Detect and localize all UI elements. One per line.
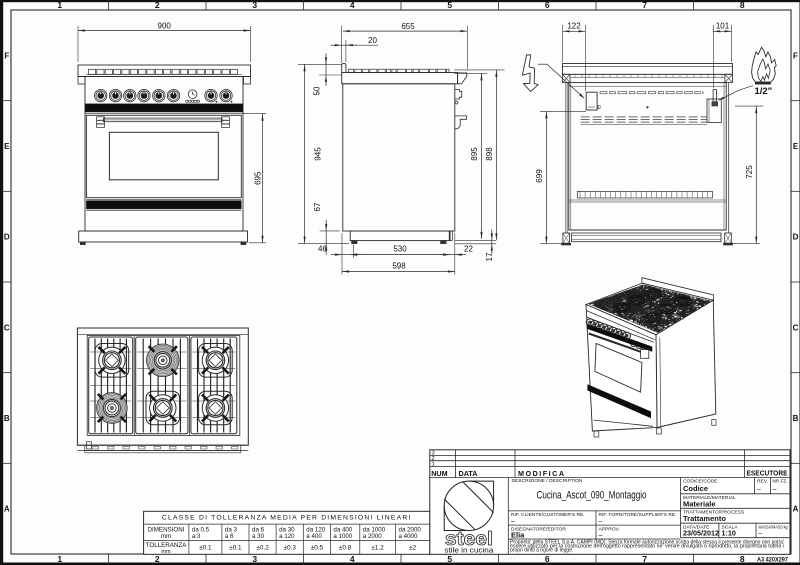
svg-text:122: 122 (567, 22, 581, 31)
svg-text:a 120: a 120 (279, 533, 295, 540)
svg-text:–: – (759, 531, 763, 538)
svg-text:4: 4 (350, 0, 355, 10)
svg-text:±0.5: ±0.5 (311, 545, 324, 552)
svg-text:945: 945 (314, 147, 323, 161)
svg-text:1/2": 1/2" (754, 86, 772, 97)
svg-text:MODIFICA: MODIFICA (518, 469, 566, 478)
svg-text:A3 420X297: A3 420X297 (757, 557, 789, 564)
svg-text:900: 900 (158, 21, 172, 30)
svg-text:±2: ±2 (409, 545, 417, 552)
svg-text:Cucina_Ascot_090_Montaggio: Cucina_Ascot_090_Montaggio (537, 490, 647, 502)
svg-text:4: 4 (350, 554, 355, 564)
svg-text:6: 6 (545, 0, 550, 10)
svg-text:3: 3 (252, 554, 257, 564)
svg-text:stile in cucina: stile in cucina (444, 546, 494, 555)
svg-text:D: D (793, 233, 799, 242)
svg-text:–: – (599, 532, 603, 539)
svg-text:propri diritti a rigore di leg: propri diritti a rigore di legge. (510, 548, 573, 554)
svg-text:±0.2: ±0.2 (256, 545, 269, 552)
svg-text:23/05/2012: 23/05/2012 (683, 529, 719, 538)
svg-text:725: 725 (745, 165, 754, 179)
svg-text:8: 8 (740, 554, 745, 564)
svg-text:±1.2: ±1.2 (371, 545, 384, 552)
svg-text:F: F (4, 51, 9, 60)
svg-text:RIF. CLIENTE/CUSTOMER'S RE.: RIF. CLIENTE/CUSTOMER'S RE. (511, 512, 585, 518)
svg-text:7: 7 (642, 554, 647, 564)
svg-text:a 6: a 6 (225, 533, 234, 540)
svg-text:RIF. FORNITORE/SUPPLIER'S RE.: RIF. FORNITORE/SUPPLIER'S RE. (599, 512, 677, 518)
svg-text:3: 3 (252, 0, 257, 10)
svg-text:695: 695 (253, 171, 262, 185)
svg-text:1: 1 (432, 462, 435, 468)
svg-text:ESECUTORE: ESECUTORE (747, 469, 788, 478)
svg-text:±0.3: ±0.3 (283, 545, 296, 552)
svg-text:2: 2 (155, 554, 160, 564)
svg-text:Materiale: Materiale (683, 500, 716, 509)
svg-text:Codice: Codice (683, 484, 708, 493)
svg-text:C: C (4, 323, 10, 332)
svg-text:Elia: Elia (511, 530, 525, 539)
svg-text:a 1000: a 1000 (333, 533, 352, 540)
svg-text:898: 898 (485, 147, 494, 161)
svg-text:–: – (773, 486, 777, 493)
svg-text:46: 46 (318, 245, 327, 254)
svg-text:±0.1: ±0.1 (229, 545, 242, 552)
svg-text:1:10: 1:10 (722, 529, 736, 538)
svg-text:Trattamento: Trattamento (683, 514, 726, 523)
svg-text:895: 895 (470, 147, 479, 161)
svg-text:6: 6 (545, 554, 550, 564)
svg-text:8: 8 (740, 0, 745, 10)
svg-text:5: 5 (447, 0, 452, 10)
svg-text:–: – (511, 518, 515, 525)
svg-text:a 3: a 3 (192, 533, 201, 540)
svg-text:B: B (793, 414, 799, 423)
svg-text:a 30: a 30 (252, 533, 265, 540)
svg-text:NUM: NUM (431, 469, 447, 478)
svg-text:E: E (4, 142, 10, 151)
svg-text:699: 699 (535, 169, 544, 183)
svg-text:A: A (793, 505, 799, 514)
svg-text:B: B (4, 414, 10, 423)
svg-text:DATA: DATA (459, 469, 478, 478)
svg-text:17: 17 (485, 252, 494, 261)
svg-text:D: D (4, 233, 10, 242)
svg-text:–: – (599, 518, 603, 525)
svg-text:–: – (757, 486, 761, 493)
svg-text:530: 530 (393, 245, 407, 254)
svg-text:DIMENSIONI: DIMENSIONI (148, 527, 185, 534)
svg-text:±0.1: ±0.1 (199, 545, 212, 552)
svg-text:NR.FZ.: NR.FZ. (773, 479, 788, 484)
svg-text:mm: mm (161, 549, 171, 555)
svg-text:2: 2 (155, 0, 160, 10)
svg-text:1: 1 (57, 0, 62, 10)
svg-text:22: 22 (464, 245, 473, 254)
svg-text:mm: mm (161, 534, 171, 540)
svg-text:REV.: REV. (757, 479, 768, 485)
svg-text:±0.8: ±0.8 (339, 545, 352, 552)
svg-text:20: 20 (368, 36, 377, 45)
svg-text:a 4000: a 4000 (399, 533, 418, 540)
svg-text:598: 598 (392, 262, 406, 271)
svg-text:E: E (793, 142, 799, 151)
svg-text:DESCRIZIONE / DESCRIPTION: DESCRIZIONE / DESCRIPTION (512, 478, 583, 484)
svg-text:MASSA/MASS kg: MASSA/MASS kg (759, 524, 788, 530)
svg-text:101: 101 (716, 22, 730, 31)
svg-text:7: 7 (642, 0, 647, 10)
svg-text:1: 1 (57, 554, 62, 564)
svg-text:67: 67 (313, 202, 322, 211)
svg-text:5: 5 (447, 554, 452, 564)
svg-text:655: 655 (401, 22, 415, 31)
svg-text:F: F (793, 51, 798, 60)
svg-text:C: C (793, 323, 799, 332)
svg-text:a 400: a 400 (306, 533, 322, 540)
svg-text:CLASSE DI TOLLERANZA MEDIA PER: CLASSE DI TOLLERANZA MEDIA PER DIMENSION… (162, 515, 412, 522)
svg-text:A: A (4, 505, 10, 514)
svg-text:50: 50 (313, 86, 322, 95)
svg-text:a 2000: a 2000 (363, 533, 382, 540)
